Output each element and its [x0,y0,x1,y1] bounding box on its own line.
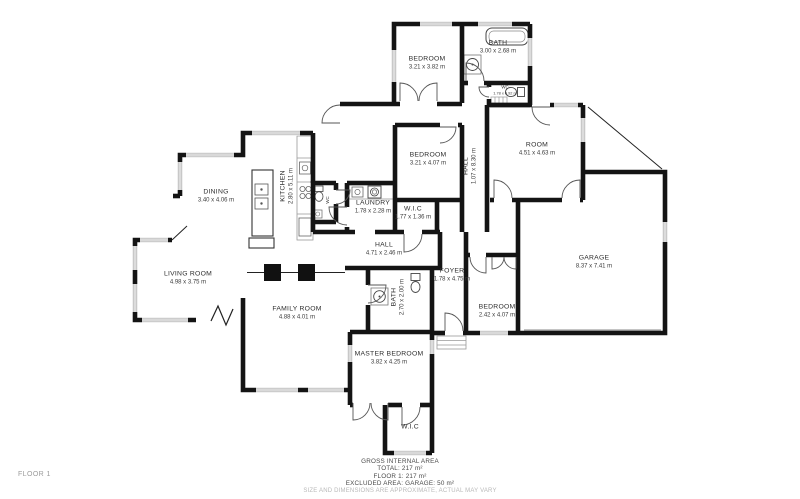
room-label-wic-mid: W.I.C 1.77 x 1.36 m [395,206,431,223]
kitchen-counter [297,136,313,240]
room-dims: 2.42 x 4.07 m [479,313,516,321]
porch-steps [437,336,466,349]
room-dims: 3.00 x 2.68 m [480,49,516,57]
disclaimer-text: SIZE AND DIMENSIONS ARE APPROXIMATE, ACT… [0,488,800,495]
room-label-kitchen: KITCHEN 2.80 x 5.11 m [280,168,297,204]
corner-notch [172,226,187,240]
room-label-bath-mid: BATH 2.70 x 2.00 m [391,279,408,315]
room-name: W.I.C [395,206,431,215]
room-name: BEDROOM [410,152,447,161]
gross-internal-area-title: GROSS INTERNAL AREA [0,458,800,465]
room-name: BEDROOM [409,56,446,65]
room-dims: 1.78 x 4.75 m [434,277,470,285]
beam-posts [247,264,345,281]
room-name: LAUNDRY [355,200,391,209]
room-dims: 2.70 x 2.00 m [400,279,408,315]
total-area: TOTAL: 217 m² [0,465,800,472]
room-dims: 3.40 x 4.06 m [198,198,234,206]
door-swings [322,63,580,425]
room-name: BATH [480,40,516,49]
room-label-hall-main: HALL 4.71 x 2.46 m [366,242,402,259]
room-label-living-room: LIVING ROOM 4.98 x 3.75 m [164,271,212,288]
room-dims: 4.88 x 4.01 m [272,315,321,323]
room-dims: 1.78 x 2.28 m [355,209,391,217]
floor1-area: FLOOR 1: 217 m² [0,473,800,480]
room-name: GARAGE [576,255,612,264]
room-dims: 1.77 x 1.36 m [395,215,431,223]
room-dims: 3.21 x 4.07 m [410,161,447,169]
room-dims: 1.07 x 8.30 m [472,148,480,184]
room-name: BATH [391,279,400,315]
room-dims: 2.80 x 5.11 m [289,168,297,204]
room-label-room: ROOM 4.51 x 4.63 m [519,142,555,159]
room-name: HALL [463,148,472,184]
room-label-laundry: LAUNDRY 1.78 x 2.28 m [355,200,391,217]
room-dims: 4.51 x 4.63 m [519,151,555,159]
floorplan-canvas: BEDROOM 3.21 x 3.82 m BATH 3.00 x 2.68 m… [0,0,800,499]
room-name: BEDROOM [479,304,516,313]
room-name: WC [325,196,331,203]
floor-tag: FLOOR 1 [18,471,51,478]
room-dims: 3.82 x 4.25 m [355,360,424,368]
room-dims: 1.78 x 0.92 m [493,90,517,95]
boundary-diagonal [588,107,662,169]
room-label-wc-top: WC 1.78 x 0.92 m [493,85,517,96]
washer-icon [368,186,381,198]
room-label-family-room: FAMILY ROOM 4.88 x 4.01 m [272,306,321,323]
room-name: MASTER BEDROOM [355,351,424,360]
room-label-hall-upper: HALL 1.07 x 8.30 m [463,148,480,184]
room-name: W.I.C [401,424,419,433]
room-name: HALL [366,242,402,251]
room-label-wic-bottom: W.I.C [401,424,419,433]
break-line-zigzag [211,306,233,325]
room-label-bath-top: BATH 3.00 x 2.68 m [480,40,516,57]
room-name: KITCHEN [280,168,289,204]
kitchen-island [249,170,274,248]
room-label-wc-kitchen: WC [325,196,331,203]
room-name: FAMILY ROOM [272,306,321,315]
room-label-bedroom-mid: BEDROOM 3.21 x 4.07 m [410,152,447,169]
room-label-dining: DINING 3.40 x 4.06 m [198,189,234,206]
room-name: ROOM [519,142,555,151]
room-name: FOYER [434,268,470,277]
laundry-counter [349,185,395,199]
room-label-bedroom-top: BEDROOM 3.21 x 3.82 m [409,56,446,73]
room-dims: 3.21 x 3.82 m [409,65,446,73]
room-name: DINING [198,189,234,198]
room-label-master-bedroom: MASTER BEDROOM 3.82 x 4.25 m [355,351,424,368]
room-dims: 4.71 x 2.46 m [366,251,402,259]
room-name: LIVING ROOM [164,271,212,280]
excluded-area: EXCLUDED AREA: GARAGE: 50 m² [0,480,800,487]
room-label-bedroom-right: BEDROOM 2.42 x 4.07 m [479,304,516,321]
room-label-garage: GARAGE 8.37 x 7.41 m [576,255,612,272]
room-dims: 8.37 x 7.41 m [576,264,612,272]
room-dims: 4.98 x 3.75 m [164,280,212,288]
room-label-foyer: FOYER 1.78 x 4.75 m [434,268,470,285]
area-summary: GROSS INTERNAL AREA TOTAL: 217 m² FLOOR … [0,458,800,495]
